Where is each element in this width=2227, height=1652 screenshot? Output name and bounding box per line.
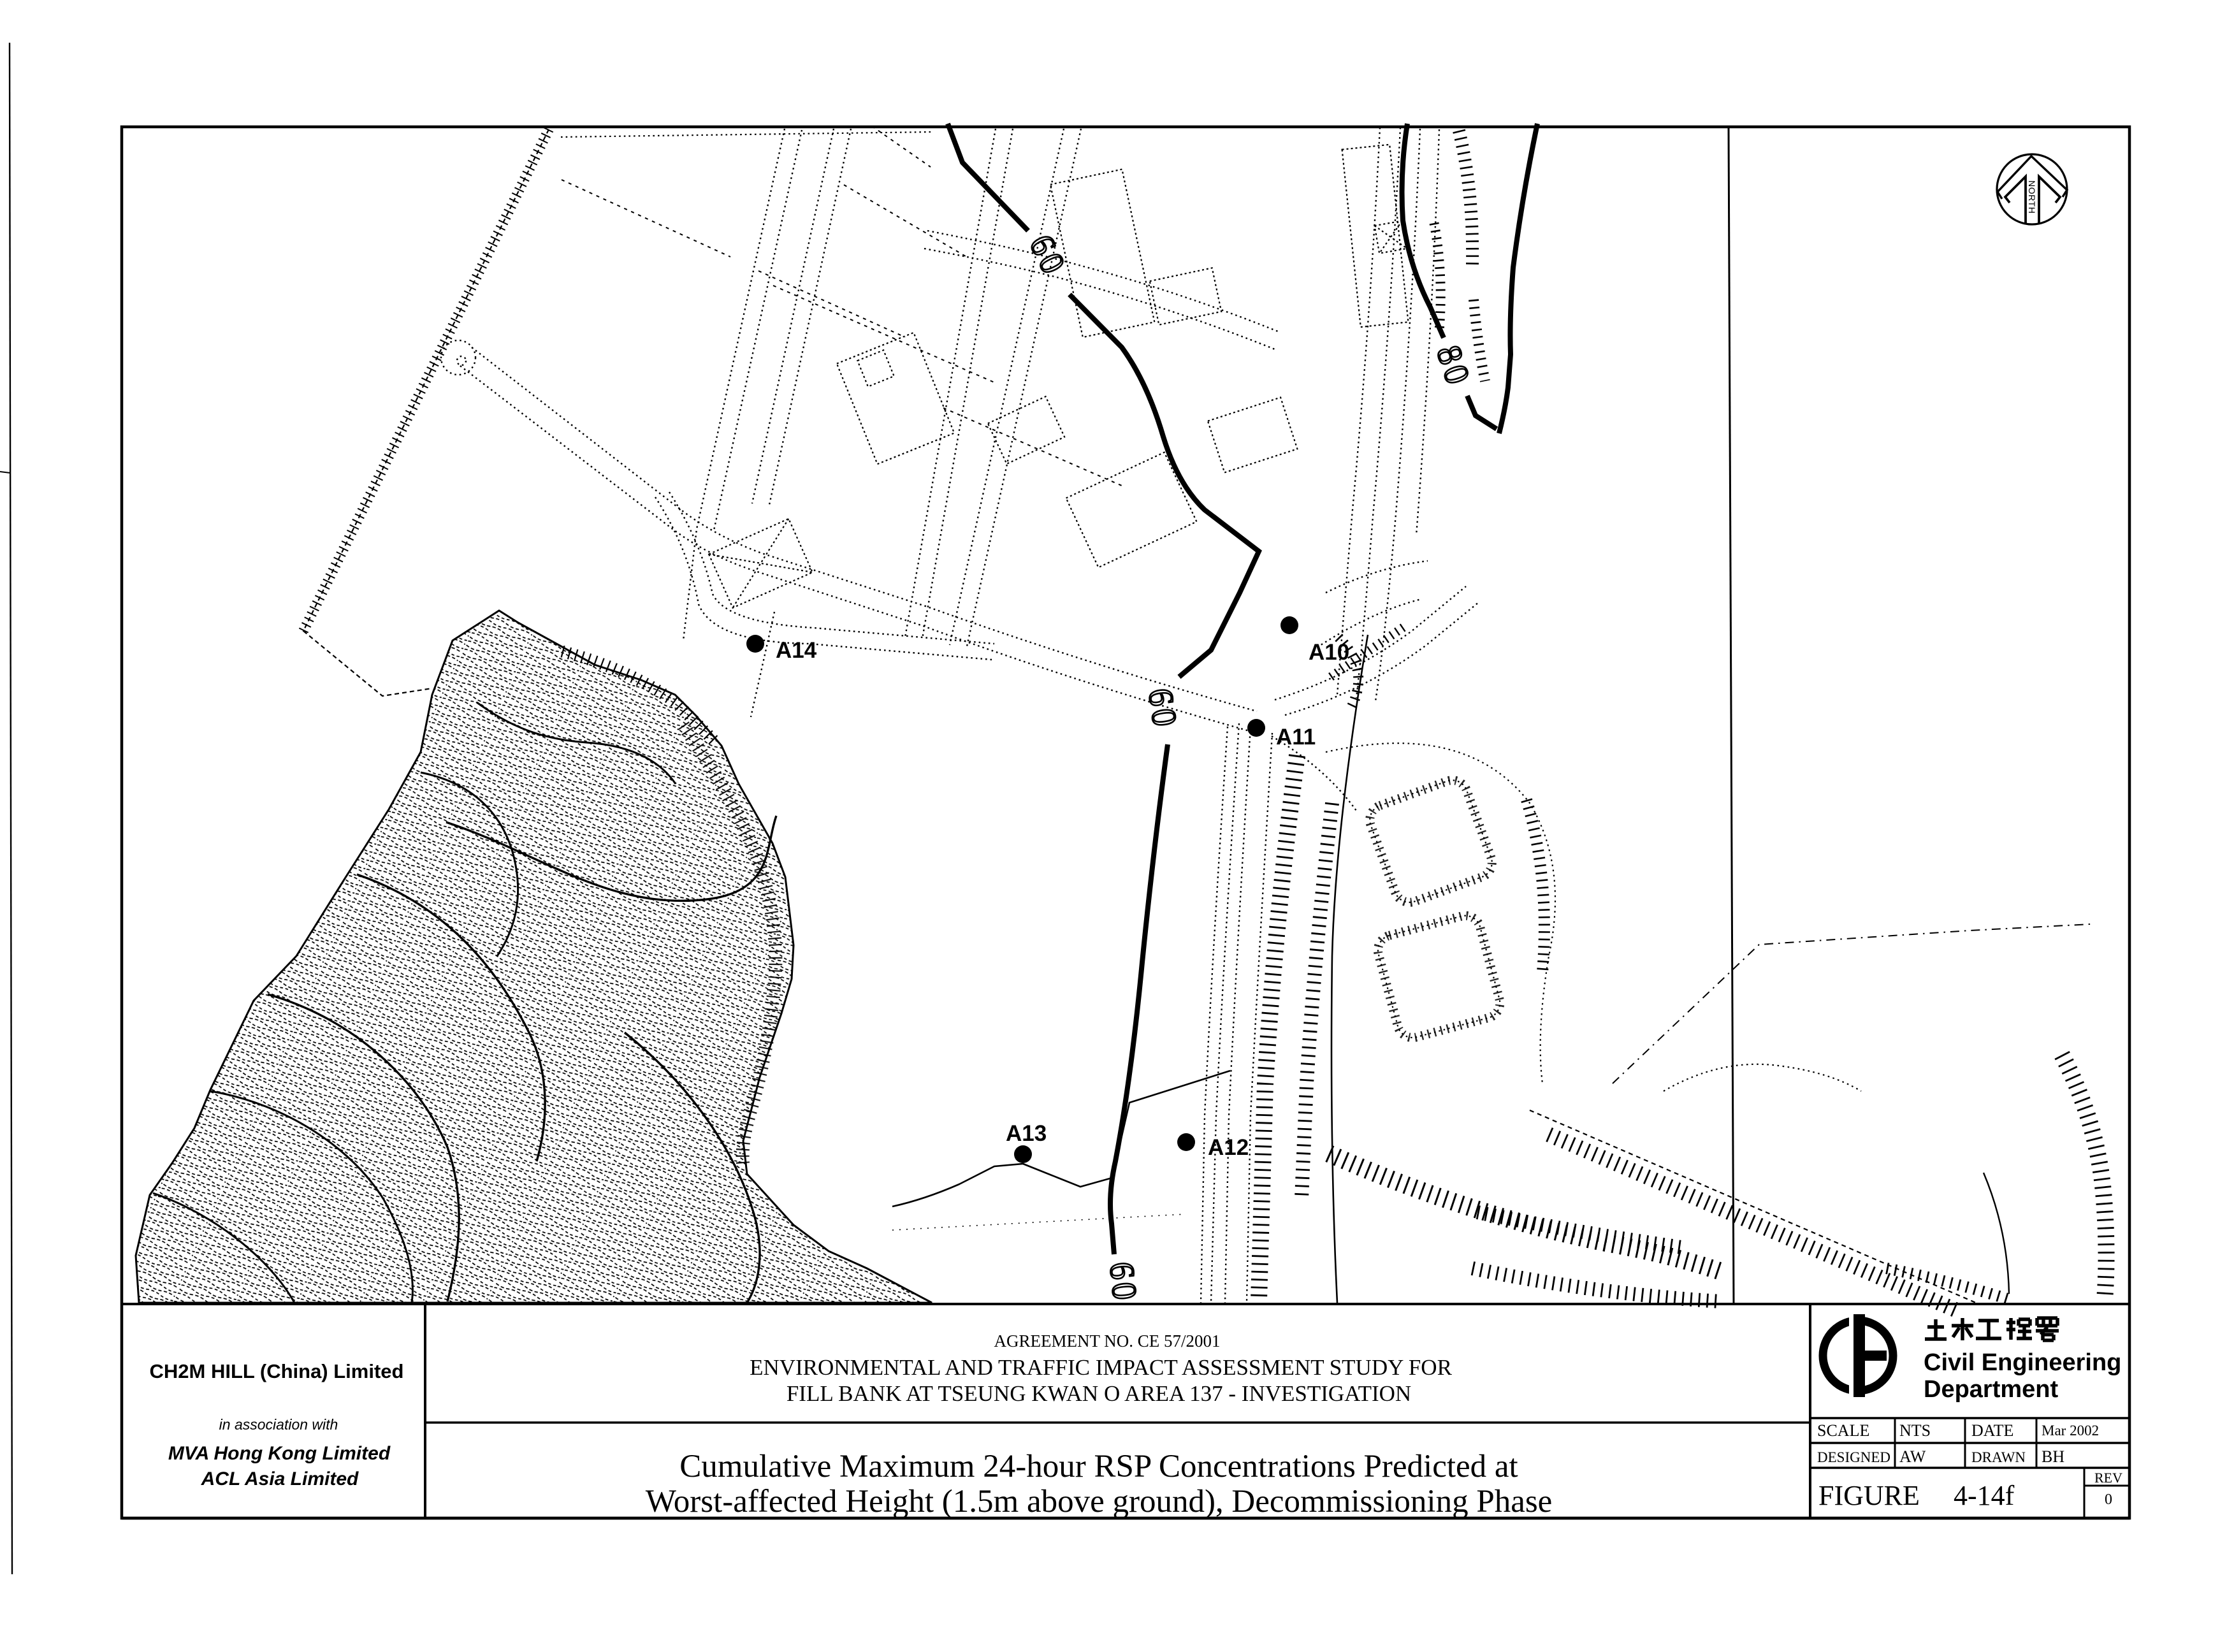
svg-text:AW: AW (1899, 1447, 1926, 1466)
svg-text:A14: A14 (776, 638, 817, 663)
svg-text:DESIGNED: DESIGNED (1817, 1449, 1890, 1465)
svg-text:Cumulative Maximum 24-hour RSP: Cumulative Maximum 24-hour RSP Concentra… (679, 1449, 1518, 1484)
svg-text:CH2M HILL (China) Limited: CH2M HILL (China) Limited (150, 1360, 404, 1382)
svg-text:Department: Department (1924, 1376, 2058, 1403)
svg-text:60: 60 (1102, 1260, 1144, 1305)
svg-text:AGREEMENT NO. CE 57/2001: AGREEMENT NO. CE 57/2001 (994, 1331, 1221, 1351)
svg-text:BH: BH (2042, 1447, 2064, 1466)
svg-text:SCALE: SCALE (1817, 1421, 1869, 1440)
svg-text:A12: A12 (1208, 1135, 1249, 1160)
svg-text:60: 60 (1022, 229, 1074, 282)
svg-text:Civil Engineering: Civil Engineering (1924, 1349, 2121, 1376)
svg-text:Worst-affected Height (1.5m ab: Worst-affected Height (1.5m above ground… (646, 1484, 1553, 1519)
svg-text:A11: A11 (1276, 725, 1316, 750)
svg-text:ENVIRONMENTAL AND TRAFFIC IMPA: ENVIRONMENTAL AND TRAFFIC IMPACT ASSESSM… (750, 1355, 1453, 1380)
svg-text:60: 60 (1141, 686, 1184, 732)
svg-text:DATE: DATE (1971, 1421, 2013, 1440)
svg-text:in association with: in association with (219, 1416, 338, 1433)
svg-text:REV: REV (2094, 1470, 2122, 1486)
svg-text:FILL BANK AT TSEUNG KWAN O ARE: FILL BANK AT TSEUNG KWAN O AREA 137 - IN… (787, 1381, 1411, 1406)
svg-text:DRAWN: DRAWN (1971, 1449, 2026, 1465)
svg-text:NORTH: NORTH (2027, 180, 2037, 214)
svg-text:ACL Asia Limited: ACL Asia Limited (201, 1468, 359, 1489)
svg-text:NTS: NTS (1899, 1421, 1931, 1440)
svg-text:Mar 2002: Mar 2002 (2042, 1423, 2099, 1438)
svg-text:0: 0 (2105, 1491, 2112, 1508)
svg-text:A13: A13 (1006, 1121, 1047, 1146)
svg-text:FIGURE: FIGURE (1818, 1480, 1920, 1511)
svg-text:80: 80 (1429, 341, 1478, 391)
svg-text:MVA Hong Kong Limited: MVA Hong Kong Limited (168, 1443, 391, 1464)
svg-text:4-14f: 4-14f (1954, 1480, 2015, 1511)
